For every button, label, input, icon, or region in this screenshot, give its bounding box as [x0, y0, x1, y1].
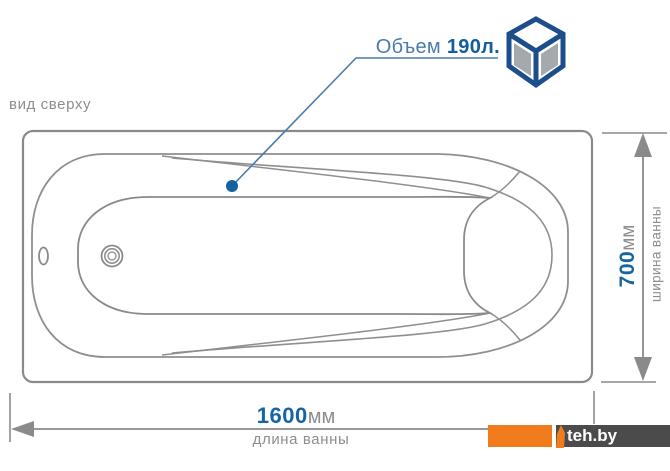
- watermark-text: teh.by: [567, 426, 617, 445]
- volume-cube-icon: [509, 19, 563, 85]
- length-caption: длина ванны: [201, 431, 401, 448]
- volume-leader-dot: [226, 180, 238, 192]
- width-unit: мм: [618, 225, 639, 251]
- length-unit: мм: [308, 406, 336, 428]
- width-arrow-up-icon: [634, 133, 652, 157]
- watermark-flame-icon: [552, 423, 568, 449]
- width-arrow-down-icon: [634, 357, 652, 381]
- watermark-logo: teh.by: [556, 425, 670, 447]
- view-label: вид сверху: [9, 96, 91, 113]
- volume-label: Объем 190л.: [300, 36, 500, 59]
- length-dimension-value: 1600мм: [196, 403, 396, 429]
- length-arrow-left-icon: [11, 421, 34, 437]
- width-caption: ширина ванны: [649, 206, 664, 302]
- watermark-orange-block: [488, 425, 552, 447]
- tub-floor-contour: [78, 197, 490, 315]
- bathtub-top-view-drawing: [0, 0, 670, 471]
- width-dimension-value: 700мм: [616, 225, 640, 288]
- length-number: 1600: [257, 403, 308, 428]
- width-number: 700: [616, 251, 639, 288]
- volume-value: 190л.: [447, 36, 500, 58]
- volume-label-text: Объем: [376, 36, 441, 58]
- bathtub-dimension-diagram: teh.by вид сверху Объем 190л. 1600мм дли…: [0, 0, 670, 471]
